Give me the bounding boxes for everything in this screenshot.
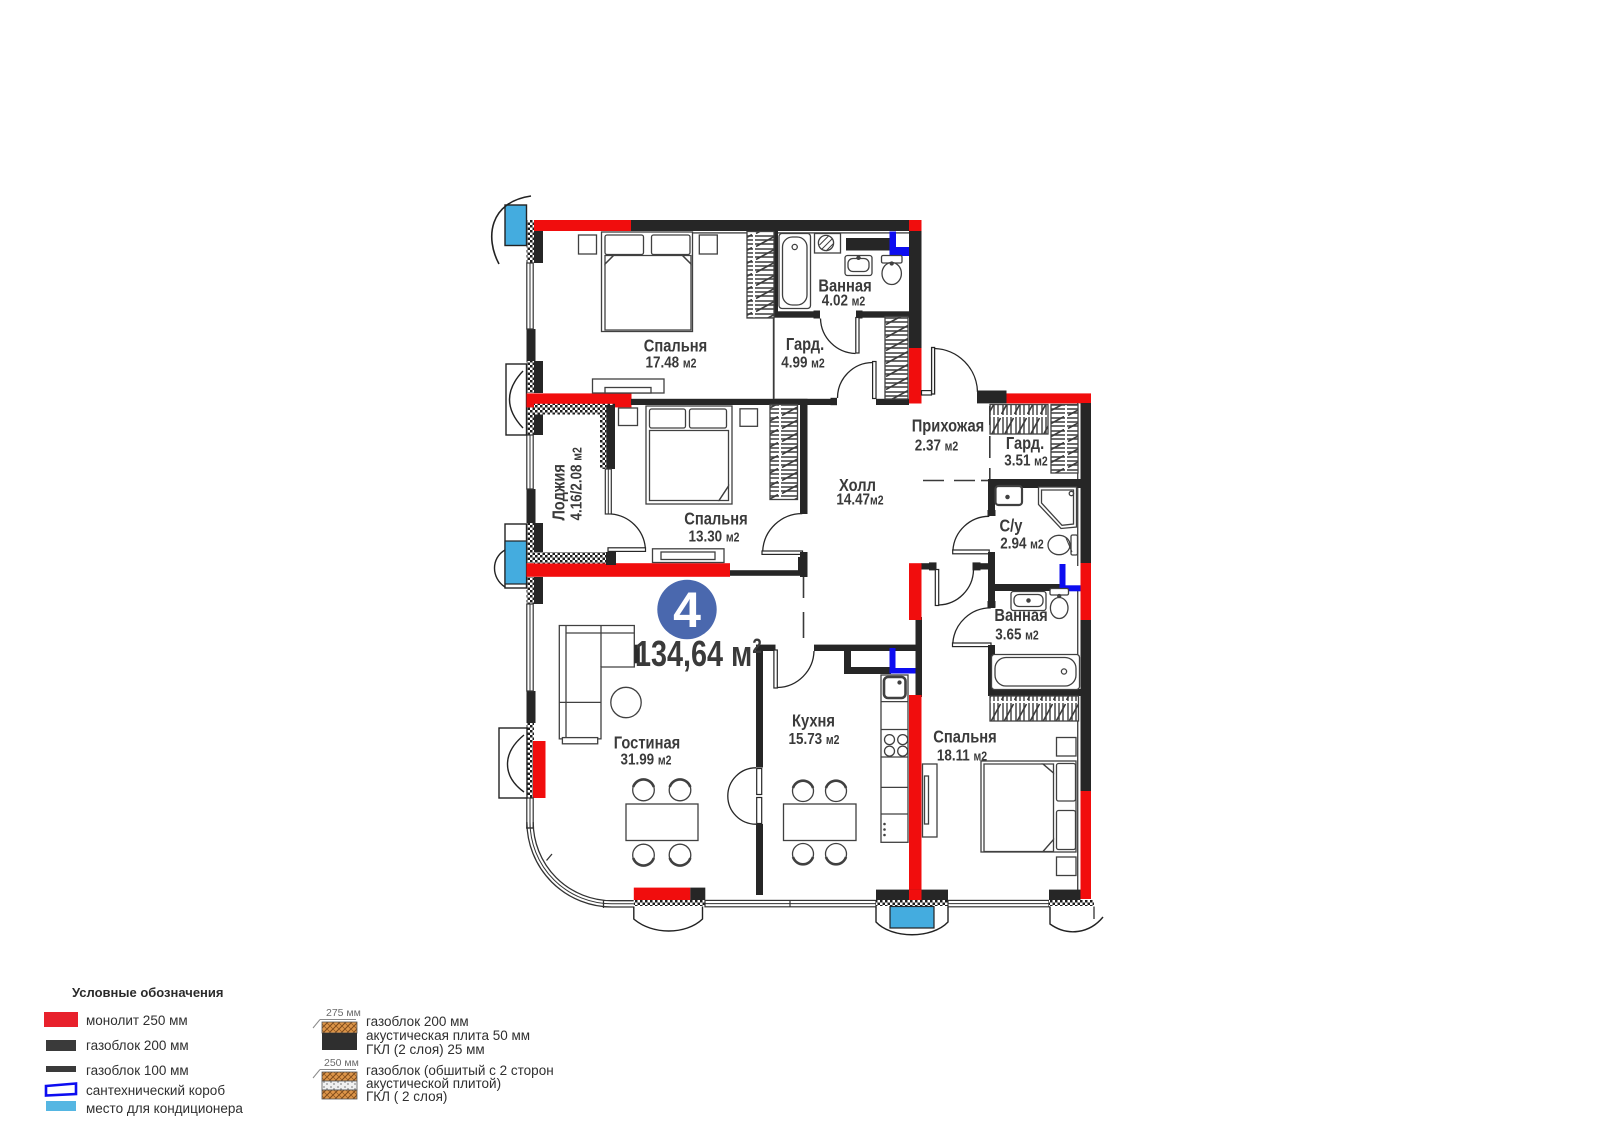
svg-text:ГКЛ (2 слоя) 25 мм: ГКЛ (2 слоя) 25 мм [366, 1042, 485, 1057]
svg-text:Прихожая: Прихожая [912, 416, 985, 435]
svg-text:газоблок 200 мм: газоблок 200 мм [366, 1014, 469, 1029]
svg-text:Кухня: Кухня [792, 711, 835, 730]
svg-text:15.73 м2: 15.73 м2 [789, 731, 840, 748]
svg-text:газоблок 100 мм: газоблок 100 мм [86, 1063, 189, 1078]
svg-text:14.47м2: 14.47м2 [836, 492, 883, 509]
svg-text:место для кондиционера: место для кондиционера [86, 1101, 243, 1116]
svg-text:ГКЛ ( 2 слоя): ГКЛ ( 2 слоя) [366, 1089, 447, 1104]
svg-text:18.11 м2: 18.11 м2 [937, 748, 987, 765]
svg-text:газоблок 200 мм: газоблок 200 мм [86, 1038, 189, 1053]
svg-text:2.94 м2: 2.94 м2 [1000, 536, 1043, 553]
svg-text:134,64 м2: 134,64 м2 [635, 633, 762, 674]
svg-text:монолит 250 мм: монолит 250 мм [86, 1013, 188, 1028]
svg-text:4.16/2.08 м2: 4.16/2.08 м2 [569, 447, 586, 520]
svg-text:Гард.: Гард. [1006, 434, 1044, 453]
svg-text:Лоджия: Лоджия [549, 464, 568, 520]
svg-text:250 мм: 250 мм [324, 1057, 359, 1069]
svg-text:Гостиная: Гостиная [614, 733, 680, 752]
svg-text:3.51 м2: 3.51 м2 [1004, 453, 1047, 470]
svg-text:С/у: С/у [1000, 516, 1023, 535]
svg-text:акустическая плита 50 мм: акустическая плита 50 мм [366, 1028, 530, 1043]
svg-text:275 мм: 275 мм [326, 1007, 361, 1019]
svg-text:31.99 м2: 31.99 м2 [621, 752, 672, 769]
svg-text:Спальня: Спальня [684, 509, 747, 528]
svg-text:Ванная: Ванная [994, 606, 1047, 625]
svg-text:Спальня: Спальня [644, 336, 707, 355]
svg-text:Спальня: Спальня [933, 727, 996, 746]
svg-text:Условные обозначения: Условные обозначения [72, 985, 223, 1000]
svg-text:17.48 м2: 17.48 м2 [646, 355, 697, 372]
svg-text:4: 4 [673, 582, 701, 638]
svg-text:3.65 м2: 3.65 м2 [995, 627, 1038, 644]
svg-text:4.99 м2: 4.99 м2 [781, 355, 824, 372]
svg-text:4.02 м2: 4.02 м2 [822, 293, 865, 310]
svg-text:2.37 м2: 2.37 м2 [915, 438, 958, 455]
svg-text:сантехнический короб: сантехнический короб [86, 1083, 225, 1098]
svg-text:13.30 м2: 13.30 м2 [689, 529, 740, 546]
svg-text:Гард.: Гард. [786, 335, 824, 354]
